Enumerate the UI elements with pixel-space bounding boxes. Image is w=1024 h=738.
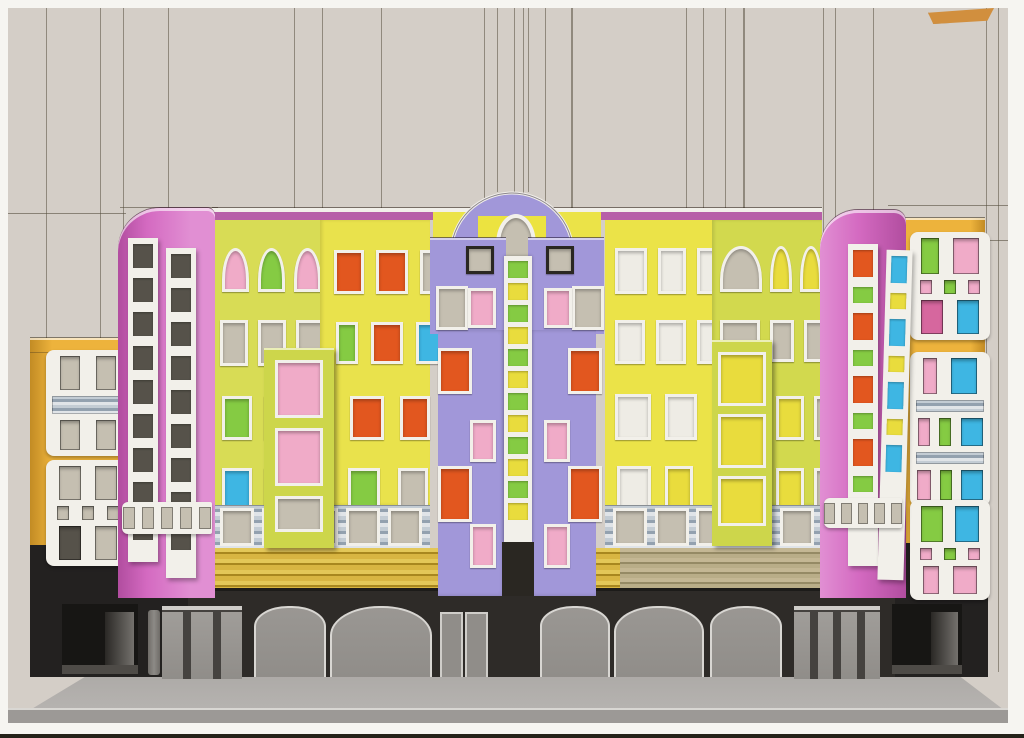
band-pane xyxy=(874,503,885,524)
band-pane xyxy=(123,507,135,529)
tower-strip-pane xyxy=(886,419,902,435)
tower-strip-pane xyxy=(171,356,191,380)
tower-strip-pane xyxy=(853,313,873,340)
band-pane xyxy=(142,507,154,529)
tower-strip-pane xyxy=(853,439,873,466)
band-pane xyxy=(180,507,192,529)
tower-strip-pane xyxy=(853,250,873,277)
band-pane xyxy=(841,503,852,524)
print-border-top xyxy=(0,0,1024,8)
tower-strip-pane xyxy=(853,287,873,303)
tower-strip-pane xyxy=(171,322,191,346)
tower-strip-pane xyxy=(133,414,153,438)
tower-strip-pane xyxy=(853,350,873,366)
tower-strip-pane xyxy=(171,458,191,482)
band-pane xyxy=(199,507,211,529)
tower-strip-pane xyxy=(133,346,153,370)
tower-strip-pane xyxy=(853,413,873,429)
band-pane xyxy=(161,507,173,529)
tower-strip-pane xyxy=(171,288,191,312)
tower-strip-pane xyxy=(133,244,153,268)
tower-strip-pane xyxy=(885,445,902,472)
tower-strip-pane xyxy=(891,256,908,283)
print-border-left xyxy=(0,0,8,738)
tower-strip-pane xyxy=(889,319,906,346)
tower-strip-pane xyxy=(853,376,873,403)
architectural-model-photo xyxy=(0,0,1024,738)
band-pane xyxy=(824,503,835,524)
band-pane xyxy=(891,503,902,524)
left-tower-band xyxy=(122,502,212,534)
tower-strip-pane xyxy=(171,424,191,448)
tower-strip-pane xyxy=(853,476,873,492)
tower-strip-pane xyxy=(133,312,153,336)
tower-window-strips xyxy=(0,0,1024,738)
tower-strip-pane xyxy=(888,356,904,372)
print-border-dark-strip xyxy=(0,734,1024,738)
tower-strip-pane xyxy=(890,293,906,309)
print-border-right xyxy=(1008,0,1024,738)
print-border-bottom xyxy=(0,723,1024,734)
tower-strip-pane xyxy=(887,382,904,409)
right-tower-strip-b xyxy=(877,250,912,581)
tower-strip-pane xyxy=(171,390,191,414)
tower-strip-pane xyxy=(133,278,153,302)
right-tower-band xyxy=(824,498,902,528)
band-pane xyxy=(858,503,869,524)
tower-strip-pane xyxy=(133,380,153,404)
tower-strip-pane xyxy=(133,448,153,472)
tower-strip-pane xyxy=(171,254,191,278)
